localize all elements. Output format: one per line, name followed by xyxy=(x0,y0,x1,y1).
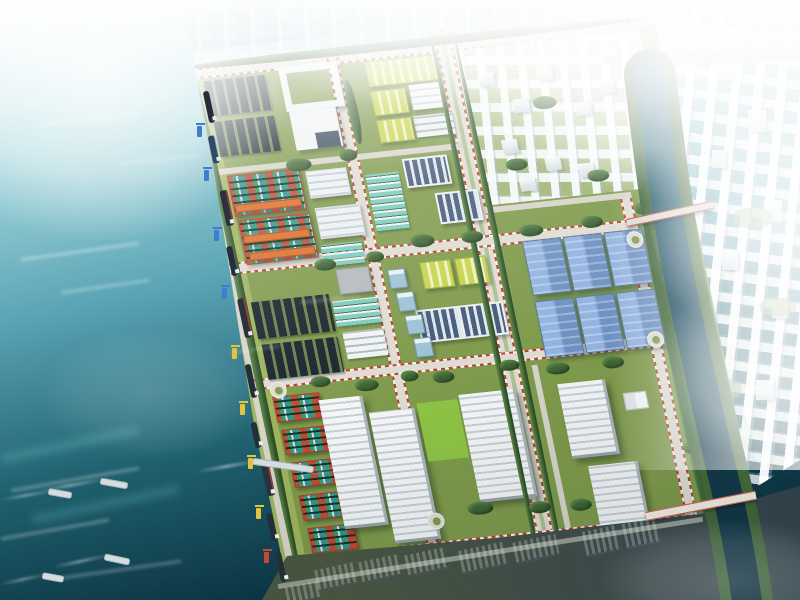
quay-crane xyxy=(214,230,219,241)
quay-crane xyxy=(222,288,227,299)
aerial-rendering xyxy=(0,0,800,600)
quay-crane xyxy=(264,552,269,563)
quay-crane xyxy=(204,170,209,181)
quay-crane xyxy=(197,126,202,137)
quay-crane xyxy=(240,404,245,415)
atmosphere xyxy=(0,0,800,600)
cloud xyxy=(650,280,800,460)
quay-crane xyxy=(256,508,261,519)
quay-crane xyxy=(248,458,253,469)
cloud xyxy=(230,0,650,110)
cloud xyxy=(600,520,800,600)
quay-crane xyxy=(232,348,237,359)
cloud xyxy=(40,330,260,460)
